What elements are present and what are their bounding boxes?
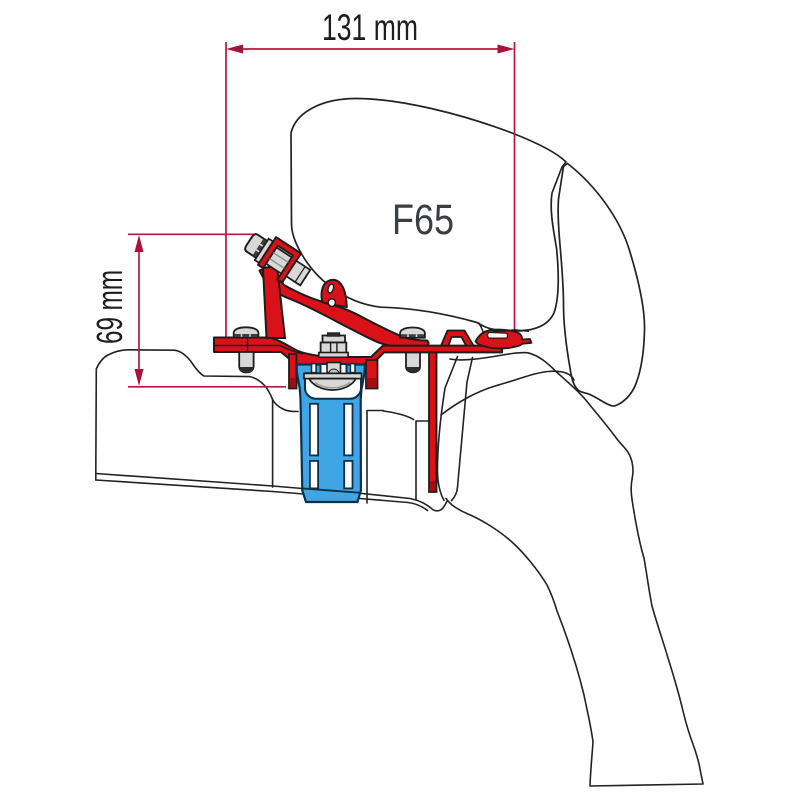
svg-text:131 mm: 131 mm: [322, 7, 418, 48]
svg-text:F65: F65: [392, 196, 454, 244]
svg-text:69 mm: 69 mm: [89, 270, 130, 344]
